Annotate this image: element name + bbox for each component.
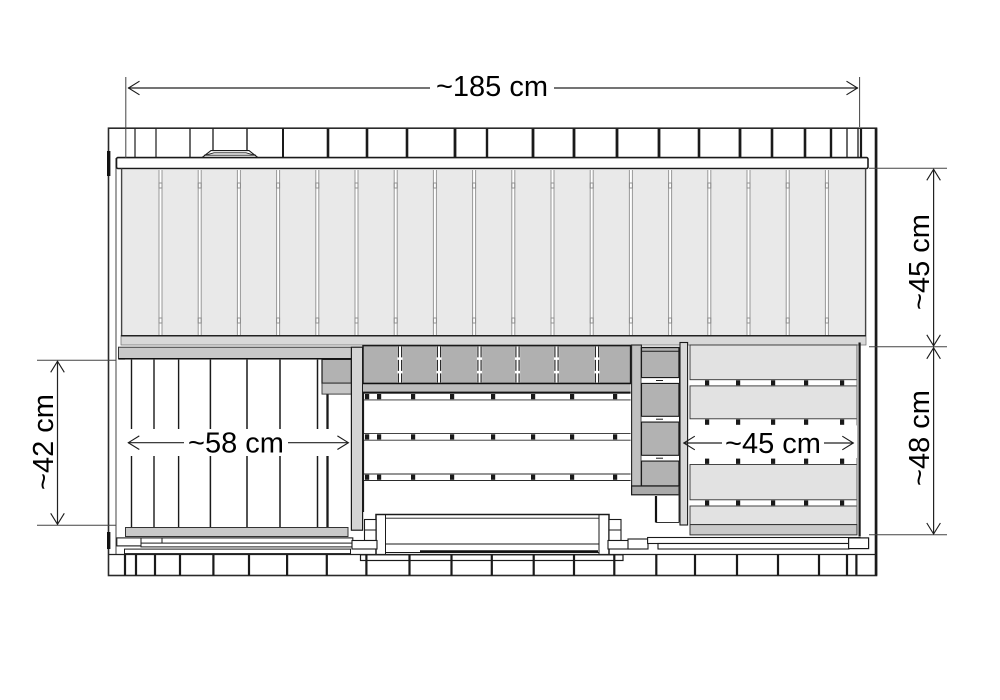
svg-text:~58 cm: ~58 cm [188, 428, 284, 460]
svg-text:~42 cm: ~42 cm [28, 394, 60, 490]
svg-text:~45 cm: ~45 cm [725, 428, 821, 460]
svg-text:~185 cm: ~185 cm [436, 71, 548, 103]
svg-text:~45 cm: ~45 cm [904, 214, 936, 310]
svg-text:~48 cm: ~48 cm [904, 390, 936, 486]
